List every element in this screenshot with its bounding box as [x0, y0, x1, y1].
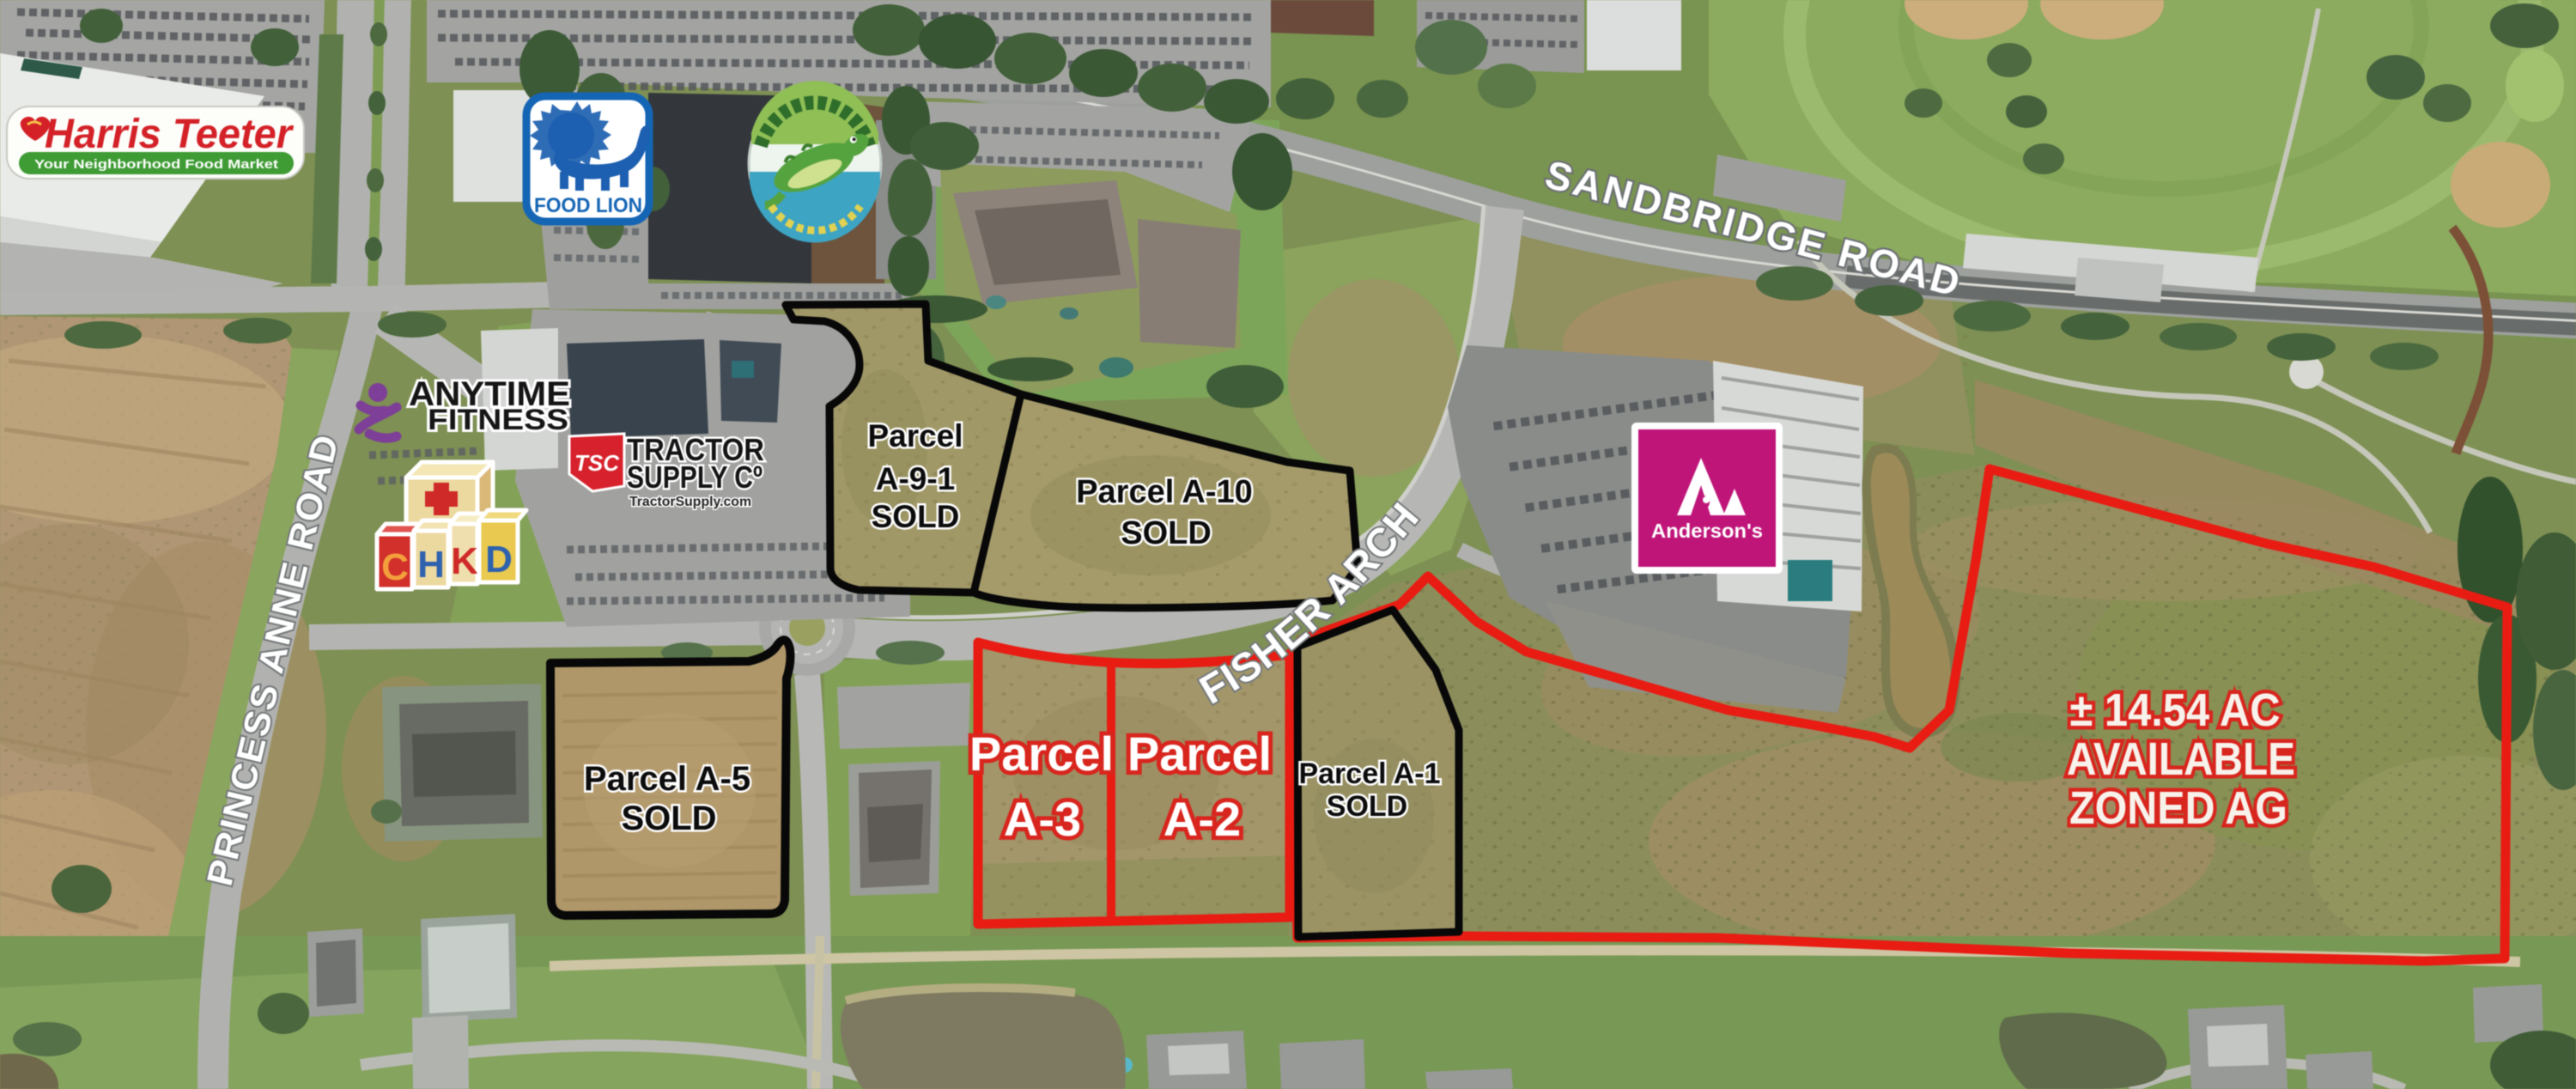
svg-text:TSC: TSC: [574, 450, 620, 476]
svg-text:Parcel: Parcel: [867, 418, 963, 453]
svg-text:SOLD: SOLD: [621, 800, 716, 837]
svg-text:SOLD: SOLD: [1121, 515, 1212, 551]
svg-text:Anderson's: Anderson's: [1651, 520, 1763, 542]
svg-text:H: H: [417, 544, 445, 586]
svg-text:Parcel A-5: Parcel A-5: [584, 760, 750, 798]
svg-text:Parcel A-10: Parcel A-10: [1076, 474, 1253, 510]
svg-text:SUPPLY Cº: SUPPLY Cº: [627, 459, 762, 495]
svg-text:C: C: [381, 546, 409, 588]
svg-text:± 14.54 AC: ± 14.54 AC: [2070, 684, 2281, 736]
svg-text:A-3: A-3: [1004, 792, 1081, 846]
svg-text:Parcel: Parcel: [969, 727, 1114, 781]
svg-text:FITNESS: FITNESS: [428, 404, 568, 436]
svg-text:FOOD LION: FOOD LION: [534, 194, 642, 217]
svg-text:Harris Teeter: Harris Teeter: [45, 112, 294, 157]
svg-text:AVAILABLE: AVAILABLE: [2067, 733, 2295, 785]
svg-text:Your Neighborhood Food Market: Your Neighborhood Food Market: [34, 157, 278, 172]
svg-text:K: K: [451, 540, 478, 582]
svg-text:Parcel: Parcel: [1127, 727, 1272, 781]
svg-text:ZONED AG: ZONED AG: [2069, 782, 2287, 834]
svg-text:A-2: A-2: [1163, 792, 1241, 846]
svg-text:TractorSupply.com: TractorSupply.com: [629, 495, 751, 509]
svg-text:A-9-1: A-9-1: [876, 461, 956, 496]
svg-text:D: D: [485, 538, 513, 581]
svg-text:SOLD: SOLD: [872, 499, 960, 534]
svg-text:SOLD: SOLD: [1327, 790, 1407, 823]
svg-text:Parcel A-1: Parcel A-1: [1298, 757, 1440, 790]
